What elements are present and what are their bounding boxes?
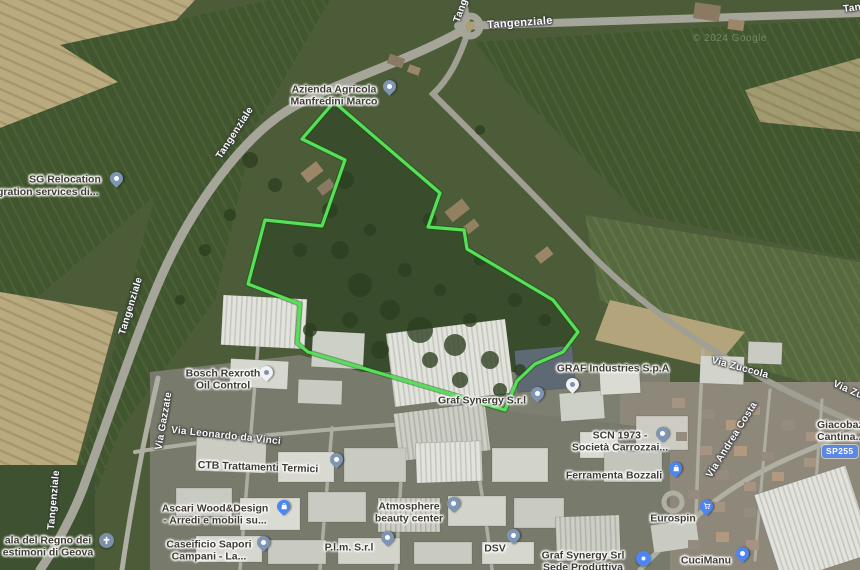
place-label-scn-1973[interactable]: SCN 1973 -Società Carrozzai... [572, 431, 668, 454]
poi-graf-synergy-sede[interactable] [636, 551, 651, 566]
satellite-map-canvas[interactable]: Tangenziale Tangenziale Tangenziale Tang… [0, 0, 860, 570]
pin-dot-icon [384, 534, 391, 541]
church-cross-icon [102, 536, 111, 545]
pin-dot-icon [386, 83, 393, 90]
pin-dot-icon [263, 369, 270, 376]
place-label-caseificio[interactable]: Caseificio SaporiCampani - La... [166, 540, 251, 563]
pin-dot-icon [113, 175, 120, 182]
pin-dot-icon [569, 381, 576, 388]
satellite-imagery [0, 0, 860, 570]
place-label-bosch[interactable]: Bosch RexrothOil Control [186, 369, 261, 392]
route-badge-sp255: SP255 [822, 445, 858, 458]
place-label-sg-relocation[interactable]: SG Relocation [29, 174, 101, 186]
pin-dot-icon [659, 430, 666, 437]
pin-dot-icon [260, 539, 267, 546]
place-label-plm[interactable]: P.l.m. S.r.l [325, 542, 374, 554]
place-label-eurospin[interactable]: Eurospin [650, 513, 696, 525]
google-copyright-watermark: © 2024 Google [693, 33, 767, 44]
place-label-ascari[interactable]: Ascari Wood&Design- Arredi e mobili su..… [162, 504, 269, 527]
pin-dot-icon [534, 390, 541, 397]
place-label-sg-relocation-line2[interactable]: gration services di... [0, 187, 99, 199]
shopping-bag-icon [672, 465, 680, 473]
place-label-ferramenta-bozzali[interactable]: Ferramenta Bozzali [566, 470, 662, 482]
place-label-atmosphere[interactable]: Atmospherebeauty center [375, 502, 443, 525]
place-label-graf-industries[interactable]: GRAF Industries S.p.A [557, 363, 670, 375]
place-label-cucimanu[interactable]: CuciManu [681, 555, 731, 567]
pin-dot-icon [739, 550, 746, 557]
shopping-bag-icon [280, 503, 288, 511]
place-label-dsv[interactable]: DSV [484, 543, 506, 555]
place-label-azienda-agricola[interactable]: Azienda AgricolaManfredini Marco [291, 85, 378, 108]
pin-dot-icon [333, 456, 340, 463]
church-poi-sala-del-regno[interactable] [99, 533, 114, 548]
pin-dot-icon [450, 500, 457, 507]
pin-dot-icon [510, 532, 517, 539]
place-label-graf-synergy-sede[interactable]: Graf Synergy SrlSede Produttiva [542, 551, 625, 570]
shopping-cart-icon [703, 503, 711, 511]
place-label-graf-synergy[interactable]: Graf Synergy S.r.l [438, 395, 526, 407]
place-label-sala-del-regno[interactable]: ala del Regno deiestimoni di Geova [3, 536, 93, 559]
factory-dot-icon [639, 554, 648, 563]
place-label-giacobazzi[interactable]: GiacobazziCantina... [817, 420, 860, 443]
